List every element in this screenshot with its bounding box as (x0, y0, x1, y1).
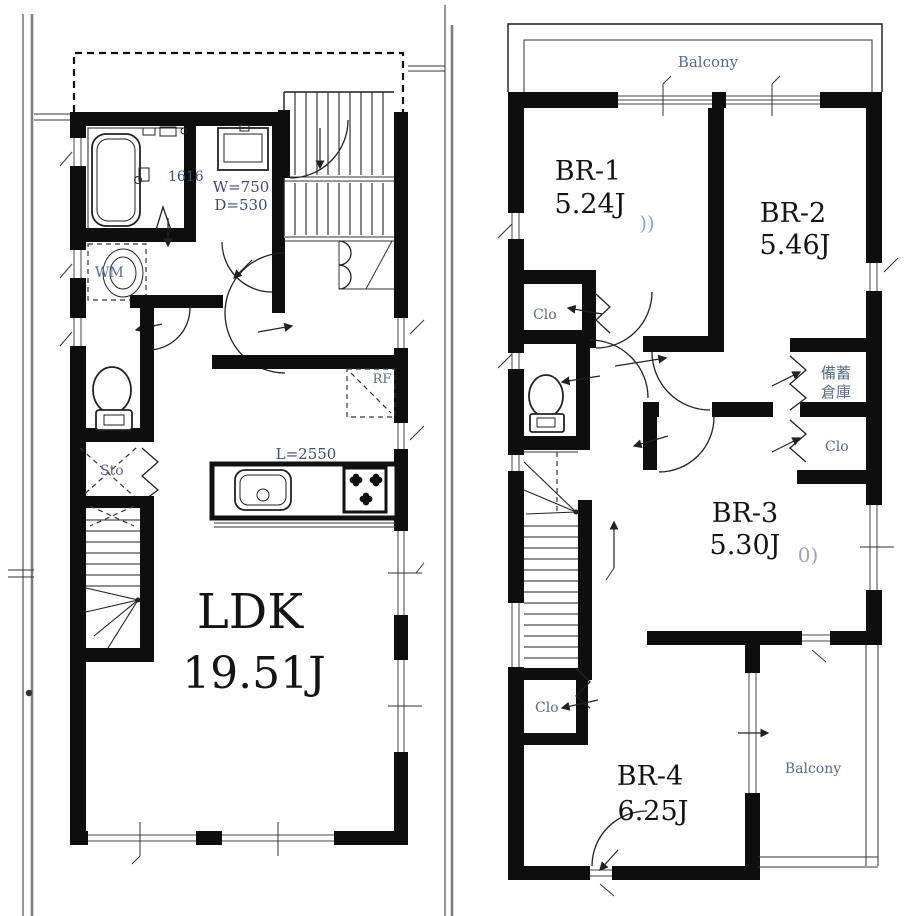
storage-room-label-2: 倉庫 (821, 383, 851, 401)
floor2-balcony-top: Balcony (508, 24, 882, 92)
ldk-size: 19.51J (182, 648, 326, 699)
closet3-label: Clo (535, 700, 559, 716)
floor2-closet1: Clo (533, 294, 610, 333)
floor2-bottom-window (590, 866, 614, 896)
washing-machine-label: WM (95, 265, 124, 281)
closet2-label: Clo (825, 439, 849, 455)
balcony-top-label: Balcony (678, 53, 739, 71)
bathroom-fold-door (156, 207, 171, 230)
kitchen-sink (235, 470, 291, 510)
vanity-basin (218, 125, 268, 170)
storage-bifold-door (142, 448, 158, 502)
kitchen-counter-label: L=2550 (276, 445, 337, 463)
vanity-width-label: W=750 (213, 178, 270, 196)
floor1-kitchen: RF L=2550 (212, 355, 397, 527)
floor1-washroom: W=750 D=530 (213, 112, 285, 313)
floor2-balcony-bottom: Balcony (758, 645, 878, 867)
floor1-stairs-upper (278, 92, 394, 289)
br1-size: 5.24J (555, 189, 626, 220)
vanity-depth-label: D=530 (214, 196, 267, 214)
bathtub (92, 134, 149, 226)
floor2-stairs (524, 452, 614, 680)
floor2-balcony-door (738, 673, 768, 793)
br3-size: 5.30J (710, 530, 781, 561)
refrigerator-space: RF (347, 369, 395, 417)
br3-name: BR-3 (712, 498, 778, 529)
floor1-bathroom: 1616 (70, 126, 204, 242)
br2-name: BR-2 (760, 198, 826, 229)
floor2-room-labels: BR-1 5.24J )) BR-2 5.46J BR-3 5.30J 0) B… (555, 156, 831, 827)
br2-size: 5.46J (760, 230, 831, 261)
mark-partial: 0) (798, 543, 819, 567)
mark-wave: )) (639, 211, 655, 235)
floor2-plan: Balcony (498, 24, 898, 896)
br4-size: 6.25J (618, 796, 689, 827)
bath-size-label: 1616 (168, 169, 204, 185)
floor2-toilet (529, 375, 564, 432)
floorplan-svg: 1616 W=750 D=530 WM (0, 0, 914, 916)
refrigerator-label: RF (373, 372, 392, 387)
br1-name: BR-1 (555, 156, 621, 187)
closet1-label: Clo (533, 307, 557, 323)
kitchen-stove (344, 468, 386, 512)
ldk-name: LDK (197, 584, 304, 640)
floorplan-page: 1616 W=750 D=530 WM (0, 0, 914, 916)
floor2-br3-window (802, 631, 830, 662)
floor1-toilet-room (70, 295, 223, 442)
toilet (93, 367, 132, 430)
storage-room-label-1: 備蓄 (821, 364, 851, 382)
floor1-plan: 1616 W=750 D=530 WM (60, 53, 424, 864)
entrance-door (339, 241, 394, 289)
balcony-bottom-label: Balcony (785, 761, 841, 777)
storage-label: Sto (100, 463, 124, 479)
br4-name: BR-4 (617, 761, 683, 792)
floor1-ldk-label: LDK 19.51J (182, 584, 326, 699)
